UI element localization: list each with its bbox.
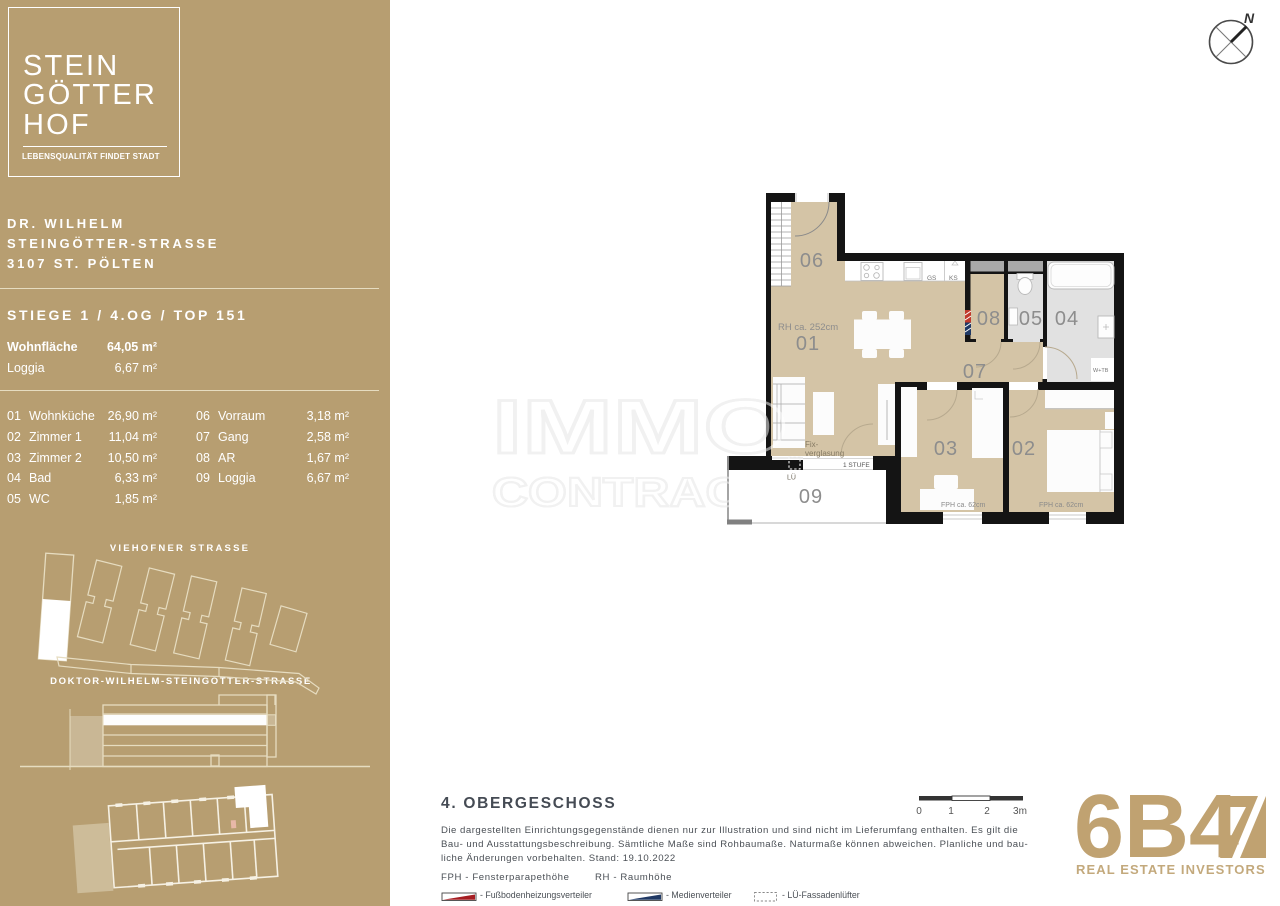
svg-text:04: 04: [1055, 308, 1079, 330]
svg-text:2: 2: [984, 806, 990, 817]
svg-text:LÜ: LÜ: [787, 474, 796, 482]
svg-text:01: 01: [796, 333, 820, 355]
svg-text:CONTRACT: CONTRACT: [492, 469, 772, 515]
svg-text:FPH ca. 62cm: FPH ca. 62cm: [941, 502, 986, 509]
svg-text:FPH ca. 62cm: FPH ca. 62cm: [1039, 502, 1084, 509]
svg-text:3m: 3m: [1013, 806, 1027, 817]
svg-text:IMMO: IMMO: [492, 385, 788, 470]
svg-text:Fix-: Fix-: [805, 440, 819, 449]
svg-text:W+TB: W+TB: [1093, 368, 1109, 374]
svg-text:GS: GS: [927, 275, 937, 282]
svg-text:08: 08: [977, 308, 1001, 330]
svg-text:1: 1: [948, 806, 954, 817]
svg-text:verglasung: verglasung: [805, 449, 844, 458]
svg-text:09: 09: [799, 486, 823, 508]
svg-text:05: 05: [1019, 308, 1043, 330]
svg-text:RH ca. 252cm: RH ca. 252cm: [778, 322, 838, 333]
svg-text:N: N: [1244, 10, 1255, 26]
svg-text:1 STUFE: 1 STUFE: [843, 462, 870, 469]
svg-text:07: 07: [963, 361, 987, 383]
svg-text:0: 0: [916, 806, 922, 817]
svg-text:02: 02: [1012, 438, 1036, 460]
svg-text:03: 03: [934, 438, 958, 460]
svg-text:06: 06: [800, 250, 824, 272]
svg-text:KS: KS: [949, 275, 958, 282]
